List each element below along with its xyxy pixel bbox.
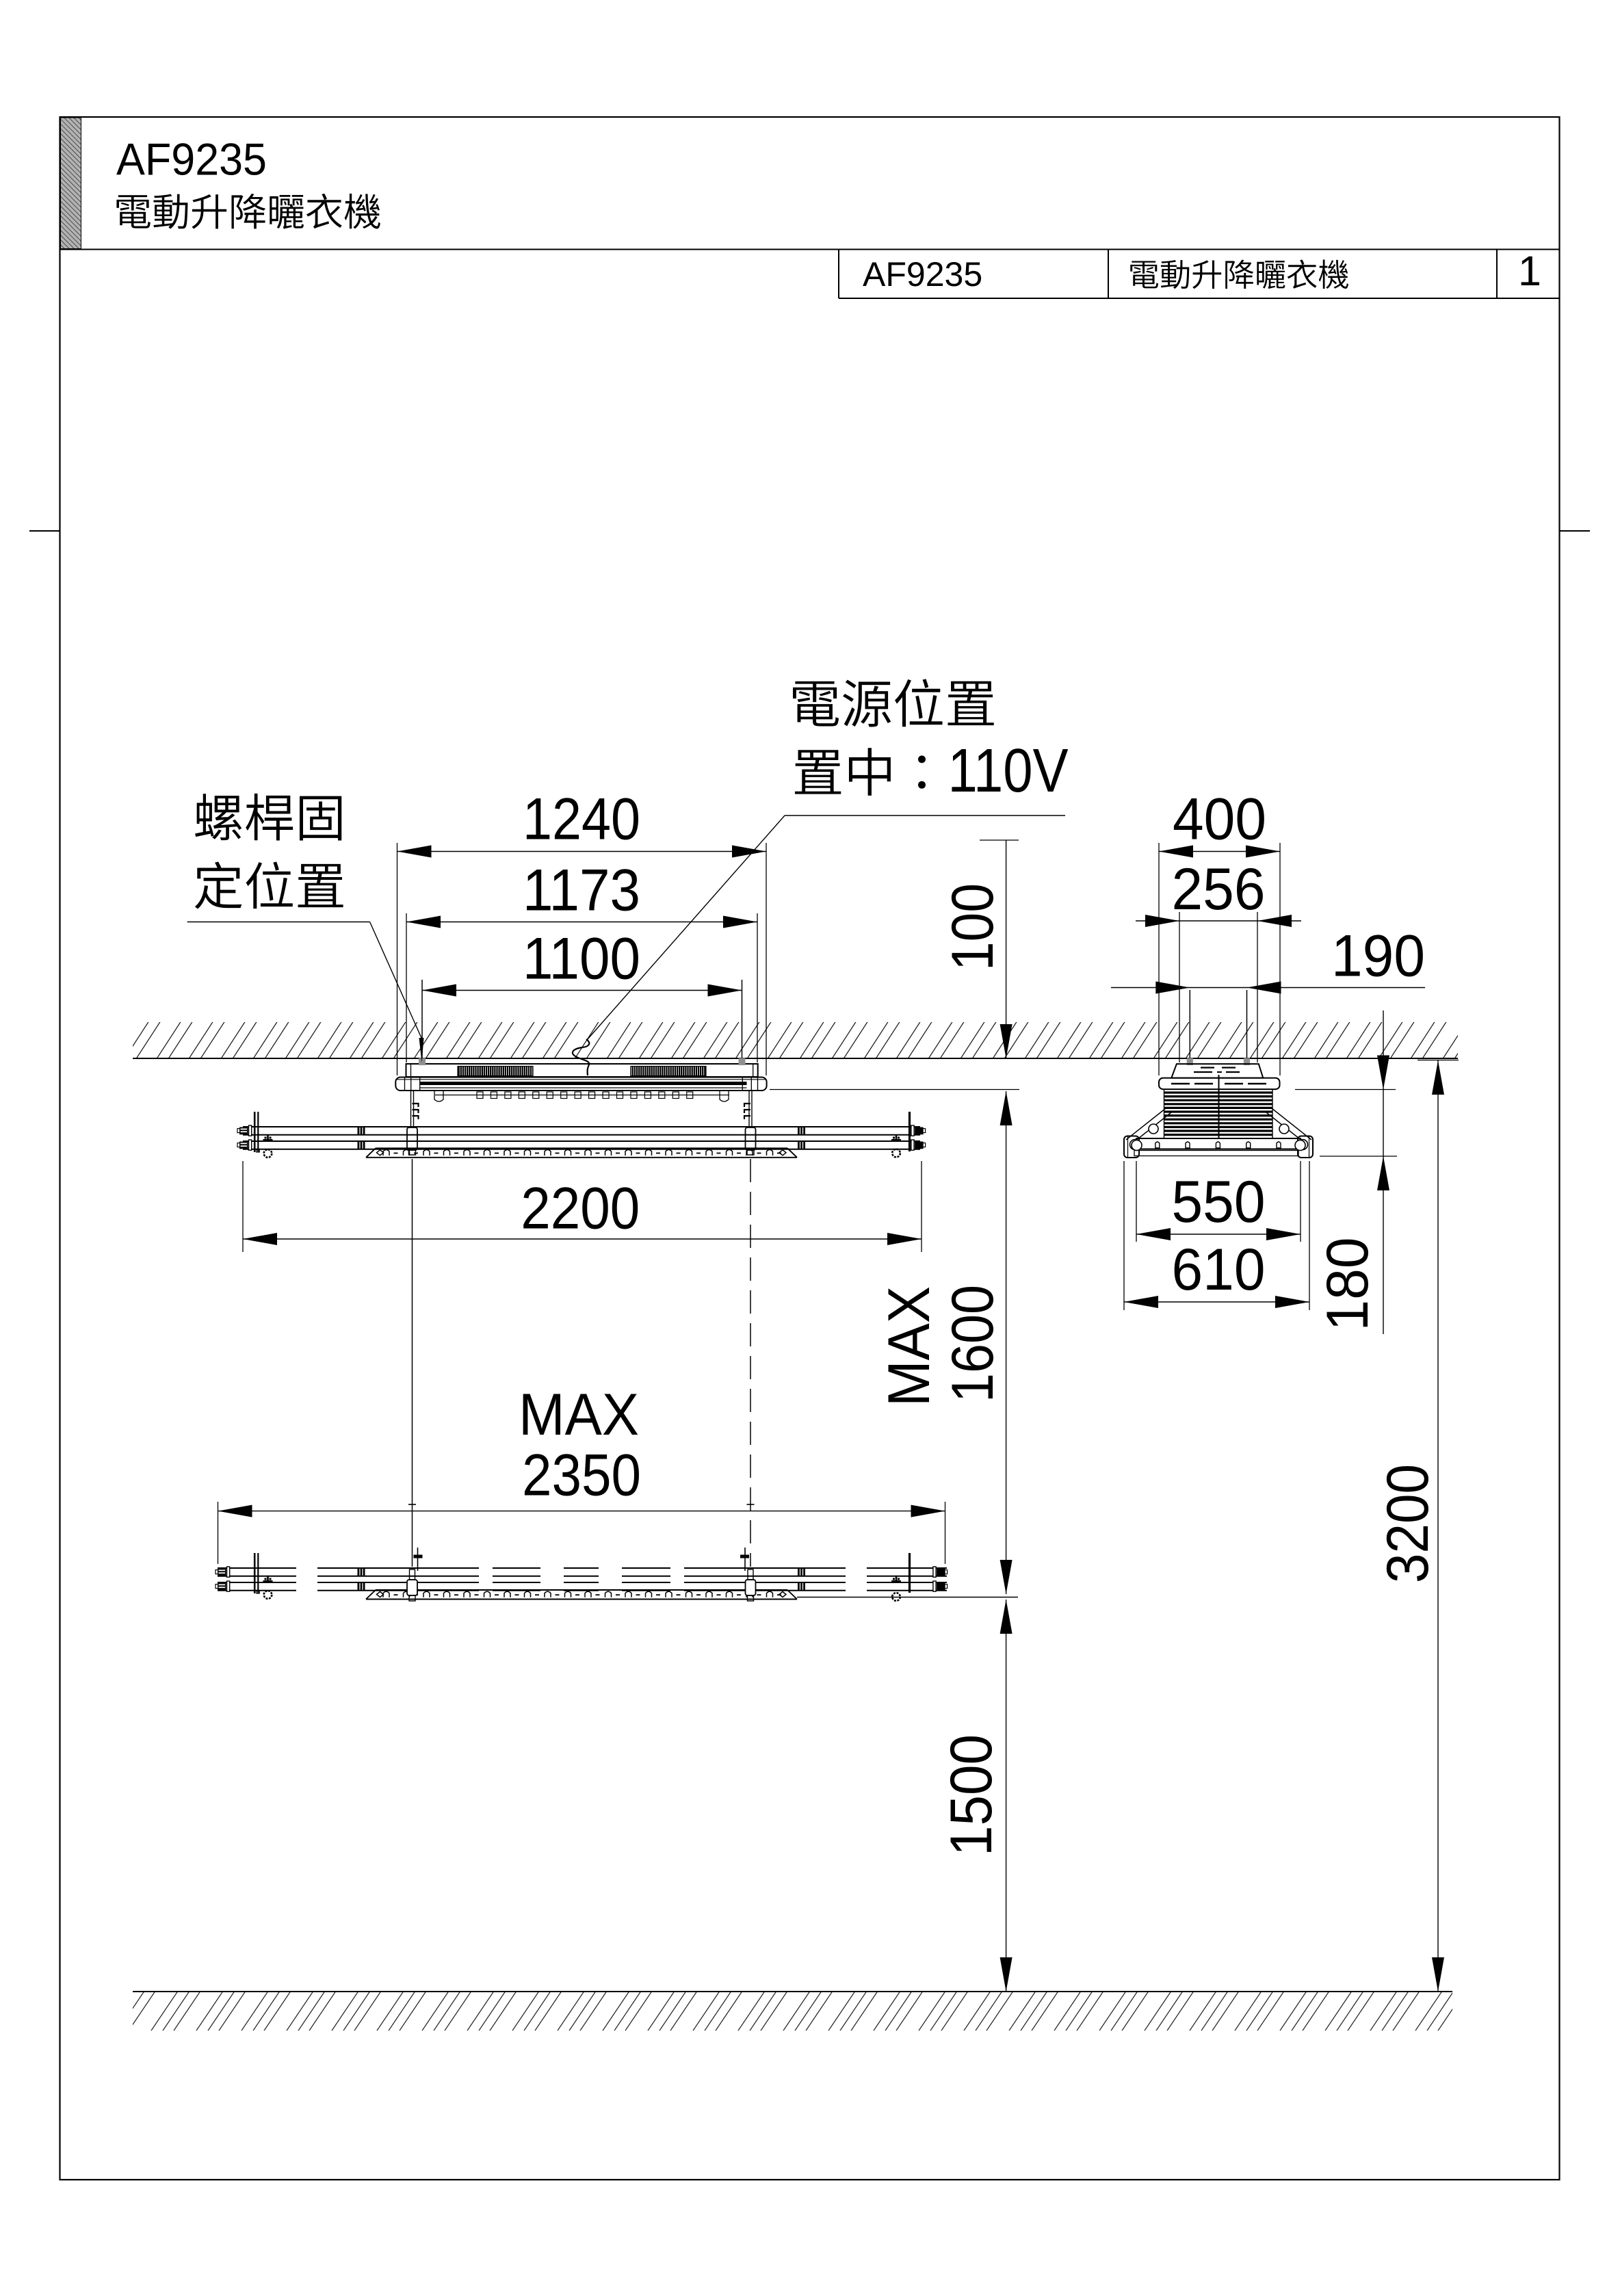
svg-text:400: 400 — [1173, 787, 1266, 852]
svg-text:180: 180 — [1315, 1238, 1381, 1331]
svg-text:MAX: MAX — [876, 1286, 942, 1407]
svg-text:AF9235: AF9235 — [863, 255, 982, 293]
svg-text:1500: 1500 — [939, 1734, 1004, 1856]
svg-text:3200: 3200 — [1375, 1464, 1441, 1583]
svg-text:1173: 1173 — [523, 858, 640, 924]
svg-text:MAX: MAX — [519, 1382, 639, 1448]
svg-text:1240: 1240 — [523, 787, 640, 852]
svg-text:2350: 2350 — [522, 1443, 641, 1509]
svg-text:256: 256 — [1172, 857, 1266, 922]
svg-text:1: 1 — [1518, 248, 1541, 294]
svg-text:110V: 110V — [948, 737, 1069, 805]
svg-text:AF9235: AF9235 — [116, 134, 267, 185]
svg-text:1600: 1600 — [940, 1285, 1006, 1403]
svg-text:610: 610 — [1172, 1237, 1266, 1303]
svg-text:190: 190 — [1331, 924, 1425, 989]
svg-text:550: 550 — [1172, 1169, 1266, 1235]
svg-text:1100: 1100 — [523, 926, 640, 992]
svg-text:2200: 2200 — [521, 1176, 640, 1242]
svg-text:100: 100 — [940, 883, 1006, 971]
